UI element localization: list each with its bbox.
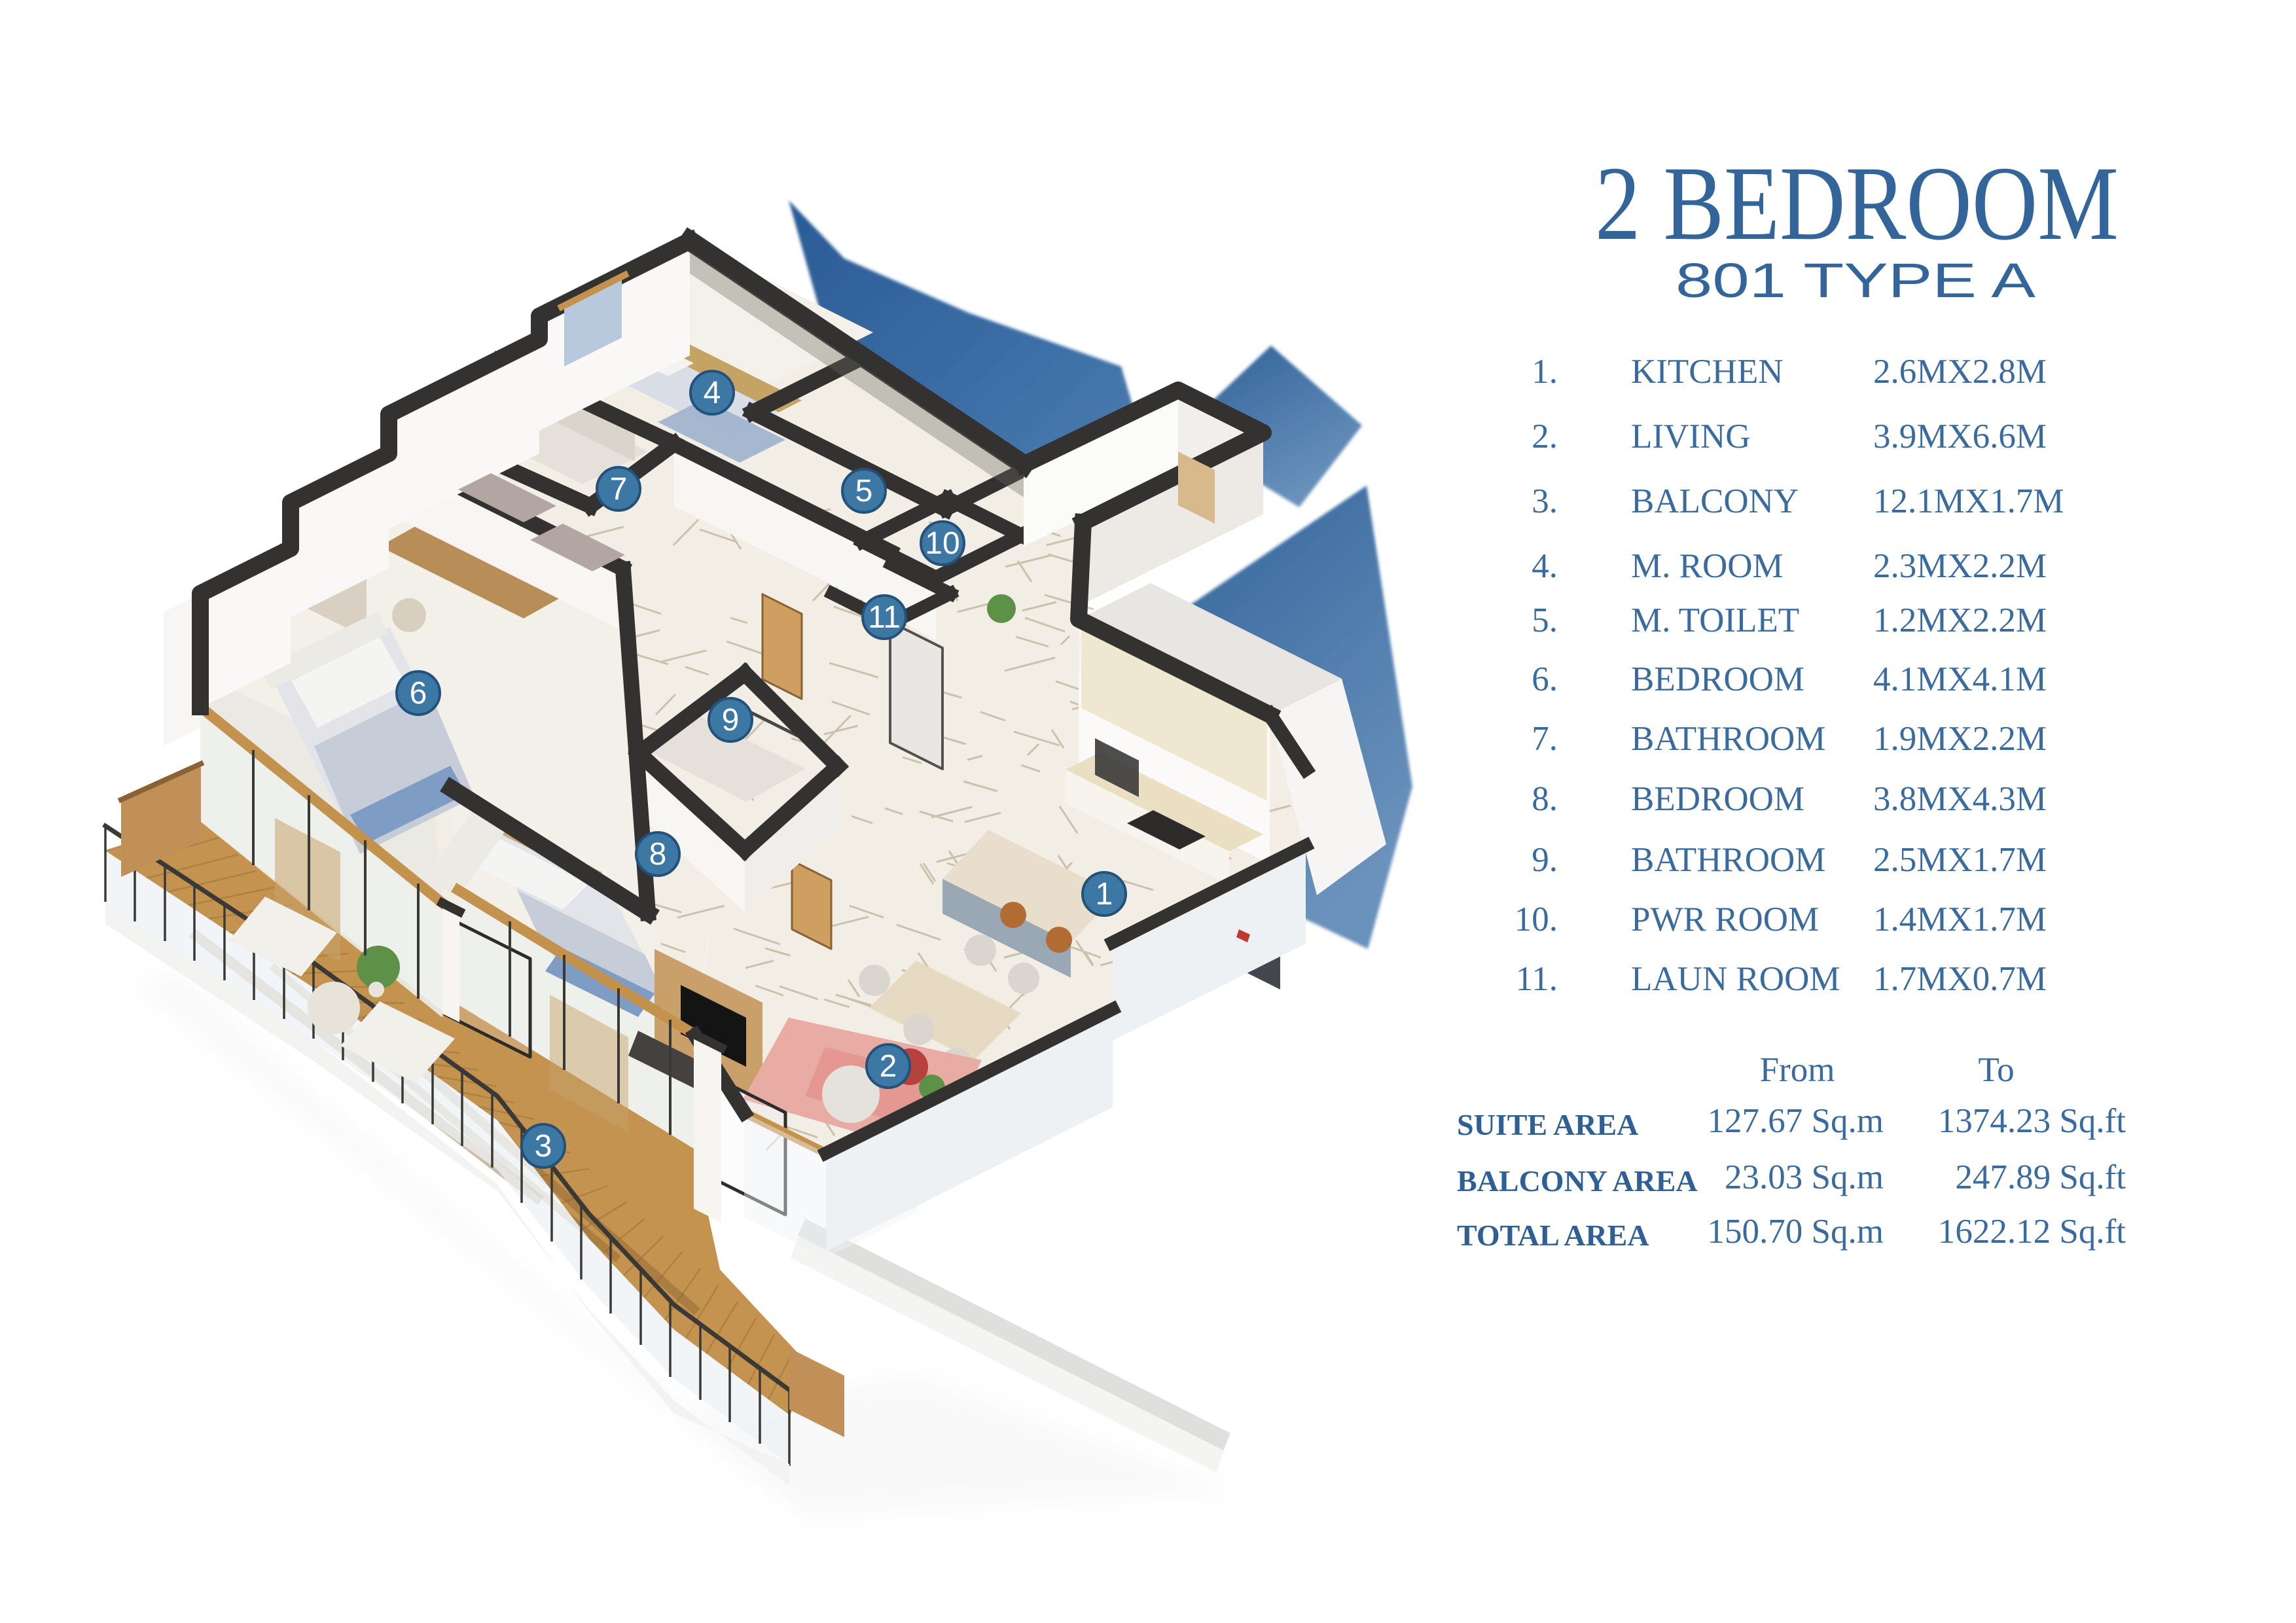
svg-text:2 BEDROOM: 2 BEDROOM bbox=[1595, 145, 2119, 262]
svg-text:801 TYPE A: 801 TYPE A bbox=[1676, 253, 2036, 308]
svg-text:4: 4 bbox=[704, 376, 721, 410]
svg-text:2.3MX2.2M: 2.3MX2.2M bbox=[1873, 547, 2047, 585]
svg-text:9.: 9. bbox=[1532, 841, 1558, 879]
svg-text:8.: 8. bbox=[1532, 780, 1558, 818]
svg-text:2: 2 bbox=[880, 1049, 897, 1084]
svg-text:1.7MX0.7M: 1.7MX0.7M bbox=[1873, 960, 2047, 998]
svg-text:BALCONY AREA: BALCONY AREA bbox=[1457, 1164, 1698, 1198]
svg-text:23.03 Sq.m: 23.03 Sq.m bbox=[1725, 1158, 1884, 1196]
svg-text:2.: 2. bbox=[1532, 418, 1558, 455]
svg-text:SUITE AREA: SUITE AREA bbox=[1457, 1108, 1638, 1141]
svg-text:247.89 Sq.ft: 247.89 Sq.ft bbox=[1955, 1158, 2126, 1196]
svg-text:1: 1 bbox=[1096, 877, 1113, 912]
svg-text:10.: 10. bbox=[1515, 901, 1558, 938]
svg-text:3.: 3. bbox=[1532, 482, 1558, 520]
svg-text:3.9MX6.6M: 3.9MX6.6M bbox=[1873, 418, 2047, 455]
svg-text:1.9MX2.2M: 1.9MX2.2M bbox=[1873, 720, 2047, 758]
svg-text:BATHROOM: BATHROOM bbox=[1631, 841, 1825, 879]
svg-text:BATHROOM: BATHROOM bbox=[1631, 720, 1825, 758]
svg-text:7: 7 bbox=[610, 472, 628, 507]
svg-text:M. ROOM: M. ROOM bbox=[1631, 547, 1784, 585]
svg-text:11.: 11. bbox=[1516, 960, 1558, 998]
svg-text:1622.12 Sq.ft: 1622.12 Sq.ft bbox=[1938, 1213, 2126, 1251]
svg-text:5.: 5. bbox=[1532, 601, 1558, 639]
svg-text:1.2MX2.2M: 1.2MX2.2M bbox=[1873, 601, 2047, 639]
svg-text:4.: 4. bbox=[1532, 547, 1558, 585]
svg-text:BEDROOM: BEDROOM bbox=[1631, 660, 1804, 698]
svg-text:2.5MX1.7M: 2.5MX1.7M bbox=[1873, 841, 2047, 879]
svg-text:From: From bbox=[1760, 1051, 1835, 1089]
svg-text:12.1MX1.7M: 12.1MX1.7M bbox=[1873, 482, 2064, 520]
svg-text:6: 6 bbox=[410, 676, 427, 711]
svg-text:To: To bbox=[1978, 1051, 2014, 1089]
svg-text:BEDROOM: BEDROOM bbox=[1631, 780, 1804, 818]
svg-text:LIVING: LIVING bbox=[1631, 418, 1751, 455]
svg-text:9: 9 bbox=[722, 703, 740, 738]
svg-text:1374.23 Sq.ft: 1374.23 Sq.ft bbox=[1938, 1102, 2126, 1140]
svg-text:LAUN ROOM: LAUN ROOM bbox=[1631, 960, 1840, 998]
svg-text:PWR ROOM: PWR ROOM bbox=[1631, 901, 1819, 938]
svg-text:8: 8 bbox=[649, 837, 667, 872]
svg-text:11: 11 bbox=[868, 600, 901, 635]
svg-text:127.67 Sq.m: 127.67 Sq.m bbox=[1708, 1102, 1884, 1140]
svg-text:M. TOILET: M. TOILET bbox=[1631, 601, 1799, 639]
svg-text:1.: 1. bbox=[1532, 353, 1558, 391]
svg-text:2.6MX2.8M: 2.6MX2.8M bbox=[1873, 353, 2047, 391]
svg-text:10: 10 bbox=[925, 526, 960, 561]
svg-text:3.8MX4.3M: 3.8MX4.3M bbox=[1873, 780, 2047, 818]
svg-text:6.: 6. bbox=[1532, 660, 1558, 698]
svg-text:7.: 7. bbox=[1532, 720, 1558, 758]
svg-text:5: 5 bbox=[855, 474, 873, 508]
svg-text:150.70 Sq.m: 150.70 Sq.m bbox=[1708, 1213, 1884, 1251]
svg-text:BALCONY: BALCONY bbox=[1631, 482, 1799, 520]
svg-text:4.1MX4.1M: 4.1MX4.1M bbox=[1873, 660, 2047, 698]
svg-text:1.4MX1.7M: 1.4MX1.7M bbox=[1873, 901, 2047, 938]
svg-text:KITCHEN: KITCHEN bbox=[1631, 353, 1784, 391]
svg-text:TOTAL AREA: TOTAL AREA bbox=[1457, 1219, 1649, 1252]
svg-text:3: 3 bbox=[535, 1129, 552, 1164]
